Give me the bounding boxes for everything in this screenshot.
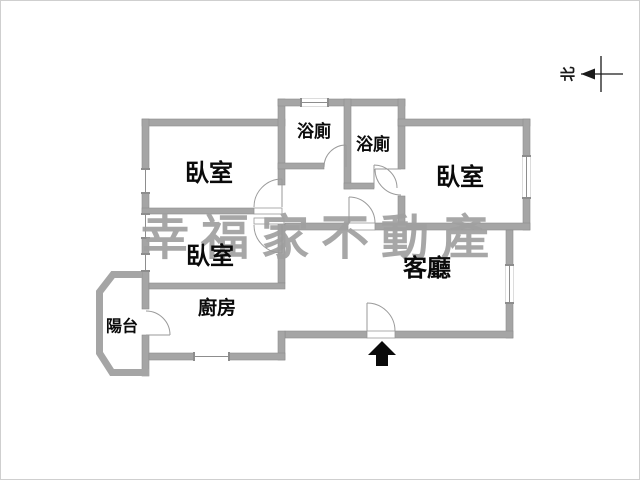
window [141,168,150,194]
north-label: 北 [559,66,577,81]
window [522,155,531,199]
window [505,264,514,304]
north-indicator: 北 [559,56,623,92]
room-label-living-room: 客廳 [403,254,451,282]
room-label-balcony: 陽台 [106,317,138,336]
door-swing [146,311,170,335]
floorplan-canvas: 幸福家不動產 臥室 臥室 臥室 浴廁 浴廁 客廳 廚房 陽台 北 [1,1,640,480]
door-swing [374,165,397,188]
room-label-kitchen: 廚房 [198,296,236,319]
room-label-bedroom-1: 臥室 [185,159,233,187]
window [193,352,230,361]
north-arrow-head [581,69,595,80]
door-swing [324,145,346,167]
room-label-bedroom-3: 臥室 [436,163,484,191]
floorplan-page: 幸福家不動產 臥室 臥室 臥室 浴廁 浴廁 客廳 廚房 陽台 北 [0,0,640,480]
window [300,98,329,107]
room-label-bedroom-2: 臥室 [186,242,234,270]
room-label-bathroom-1: 浴廁 [297,121,331,142]
room-label-bathroom-2: 浴廁 [356,134,390,155]
door-swing [367,303,395,331]
entrance-arrow [368,341,396,366]
door-swing [375,169,401,195]
